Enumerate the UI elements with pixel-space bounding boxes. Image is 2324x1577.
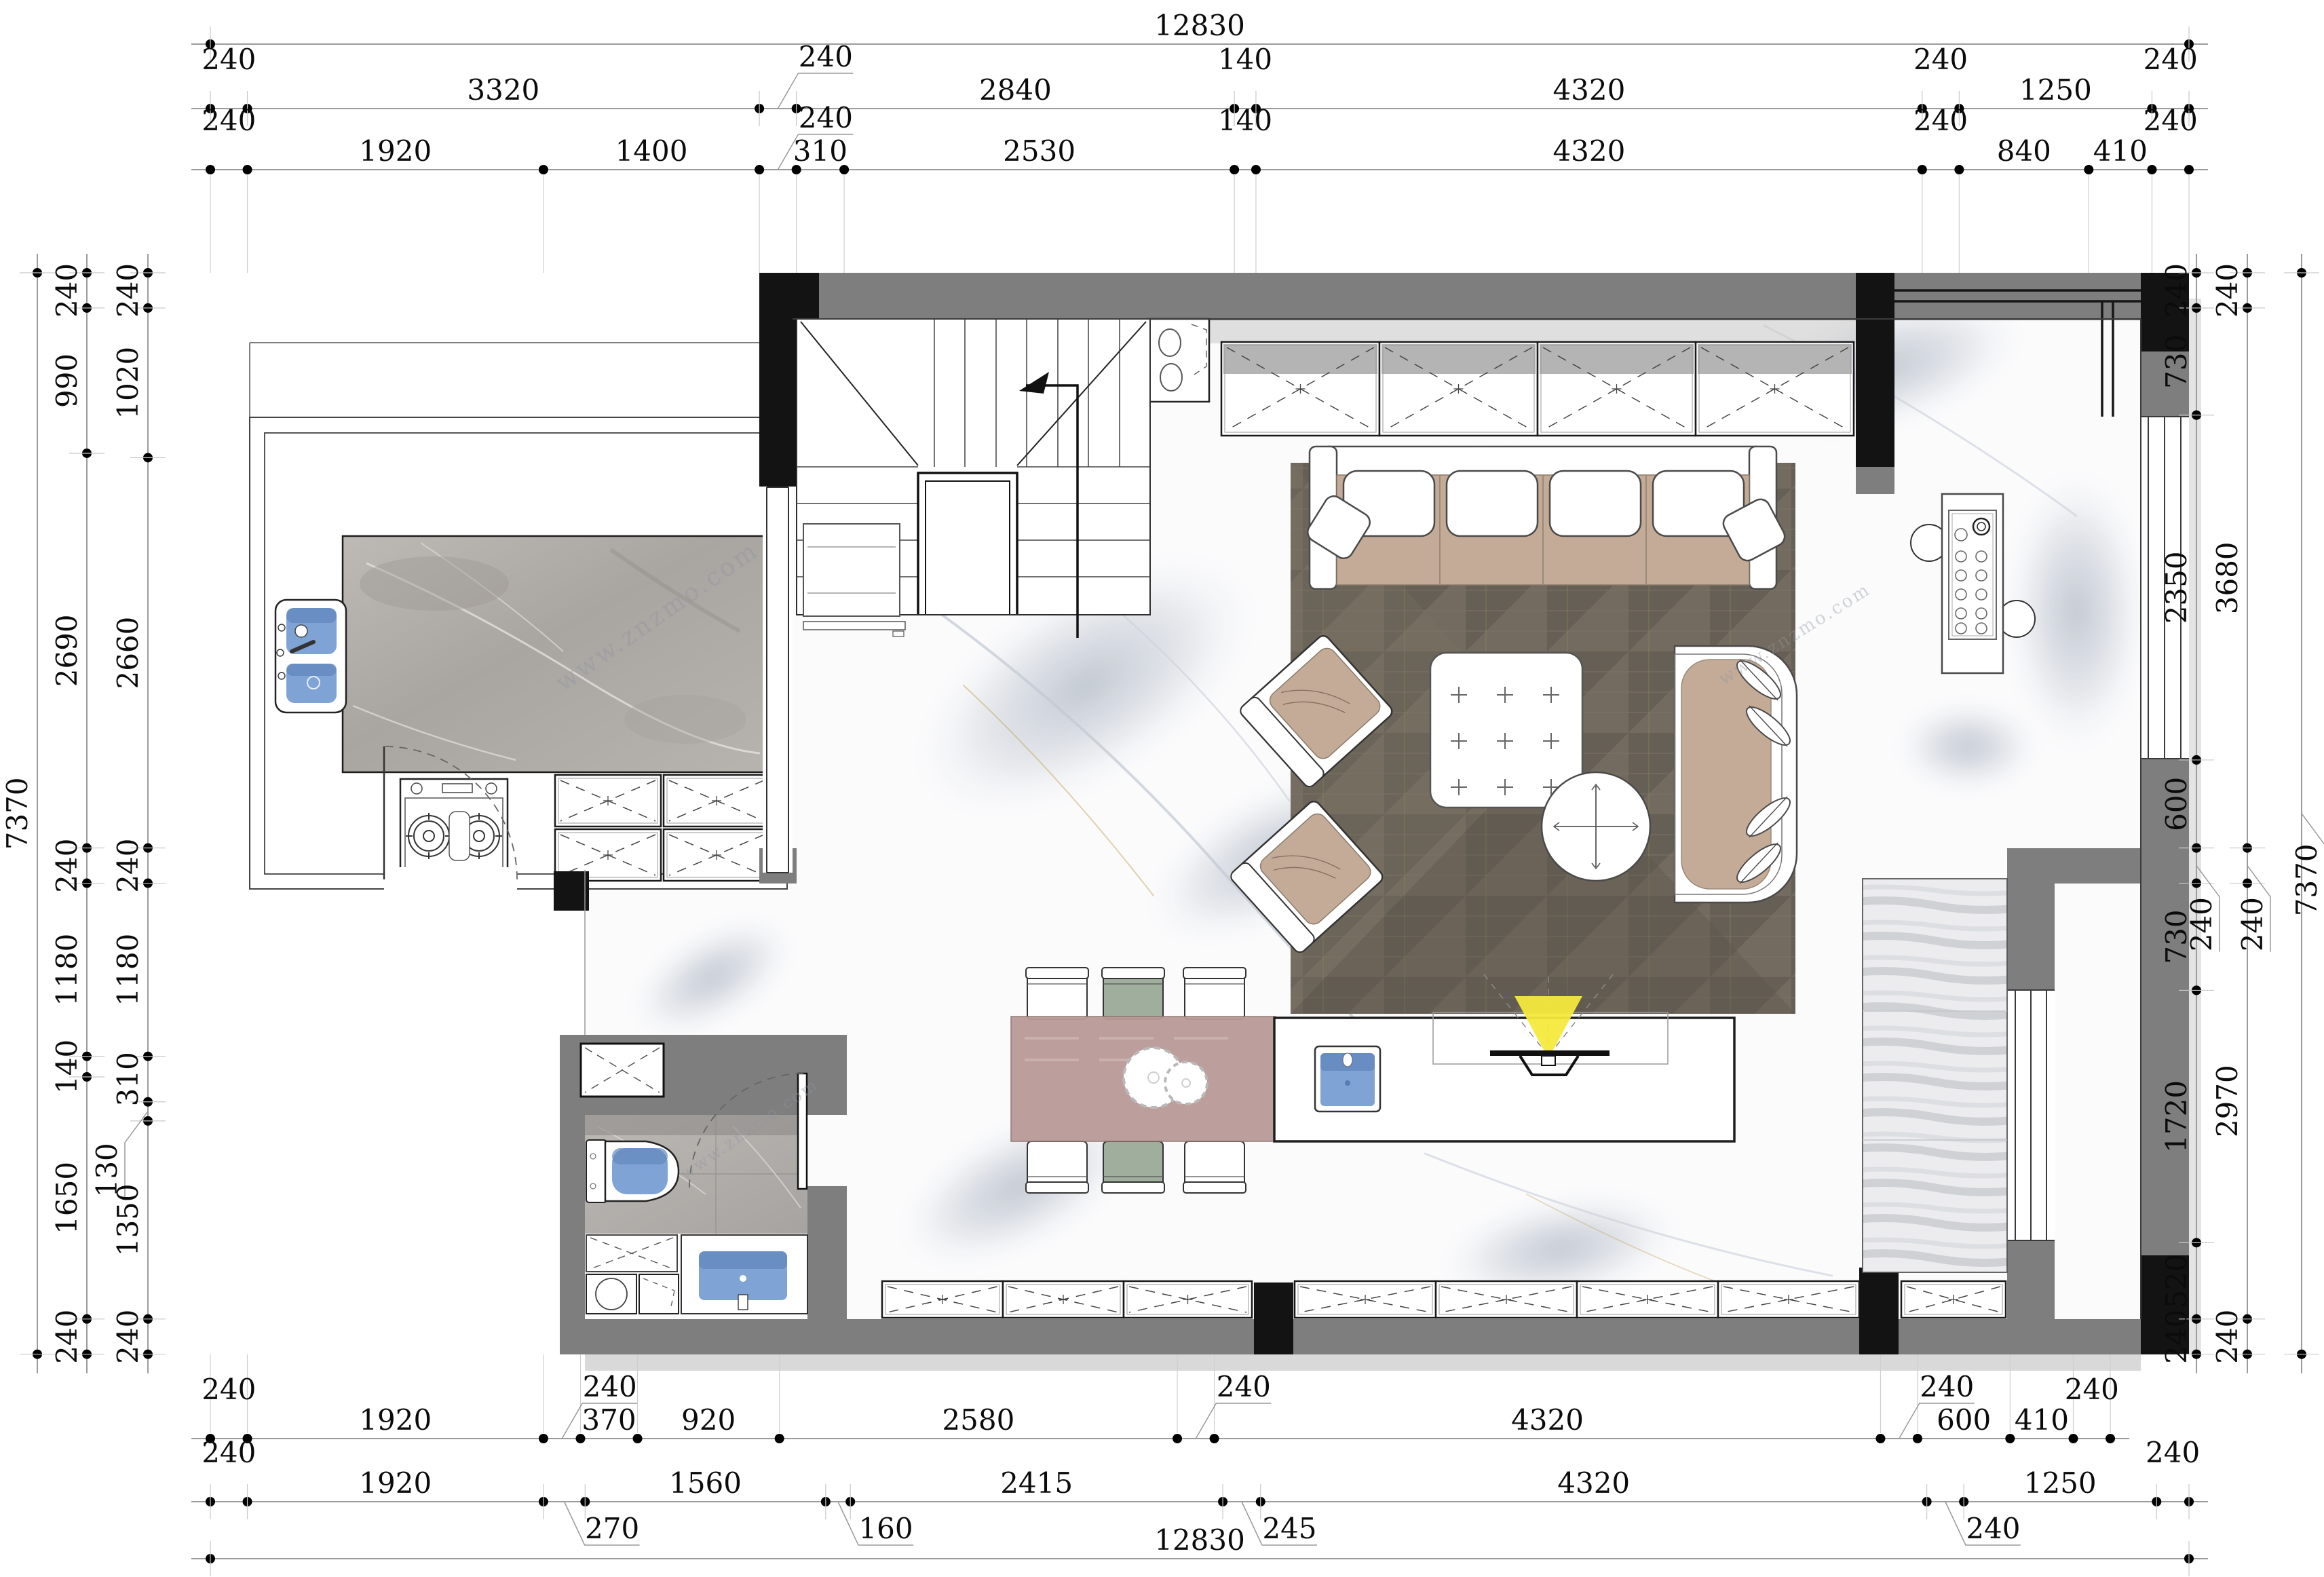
dim-label: 240 (50, 263, 83, 318)
top-wall (759, 273, 2189, 320)
dim-label: 240 (1920, 1370, 1974, 1403)
sofa (1304, 446, 1788, 589)
dim-label: 240 (202, 1436, 256, 1469)
dim-label: 240 (1217, 1370, 1271, 1403)
dining-chair (1102, 968, 1164, 1019)
dim-dot (206, 165, 215, 174)
dim-label: 2970 (2211, 1065, 2244, 1137)
x-cabinet (1124, 1281, 1252, 1318)
staircase (797, 319, 1150, 638)
dim-label: 160 (858, 1512, 913, 1545)
recess-window (2007, 990, 2055, 1240)
dining-chair (1102, 1141, 1164, 1193)
dim-label: 1650 (50, 1162, 83, 1234)
dim-label: 730 (2160, 909, 2193, 964)
dim-label: 1020 (111, 347, 145, 419)
top-closets (1221, 342, 1854, 436)
dim-label: 12830 (1154, 9, 1245, 42)
dim-label: 520 (2160, 1253, 2193, 1308)
cooktop-counter (1147, 319, 1209, 402)
dim-label: 240 (2160, 1310, 2193, 1364)
dim-label: 240 (50, 1310, 83, 1364)
dim-label: 4320 (1552, 73, 1625, 107)
dim-dot (2069, 1434, 2078, 1443)
dim-label: 1250 (2024, 1466, 2097, 1500)
dim-label: 7370 (2290, 843, 2323, 916)
round-side-table (1542, 772, 1650, 881)
dim-label: 7370 (1, 777, 34, 850)
gas-stove (400, 779, 508, 879)
dim-dot (1918, 165, 1927, 174)
dim-label: 1920 (359, 134, 432, 168)
dim-label: 1920 (359, 1403, 432, 1437)
dim-dot (1875, 1434, 1885, 1443)
dim-label: 240 (2146, 1436, 2200, 1469)
x-cabinet (664, 829, 769, 881)
dim-label: 310 (793, 134, 847, 168)
bath-lower-fixtures (586, 1235, 807, 1314)
dining-chair (1026, 1141, 1088, 1193)
dim-label: 245 (1262, 1512, 1316, 1545)
dim-label: 2580 (942, 1403, 1014, 1437)
dim-label: 990 (50, 354, 83, 408)
dim-dot (539, 1434, 548, 1443)
x-cabinet (1577, 1281, 1718, 1318)
dim-label: 370 (582, 1403, 636, 1437)
feature-stone-panel (1863, 879, 2007, 1272)
dim-label: 1250 (2019, 73, 2092, 107)
x-cabinet (1718, 1281, 1859, 1318)
x-cabinet (1221, 342, 1379, 436)
dim-label: 1560 (669, 1466, 742, 1500)
dim-label: 920 (681, 1403, 736, 1437)
ottoman-coffee-table (1430, 653, 1582, 807)
dim-label: 240 (1966, 1512, 2020, 1545)
bottom-cabinets (882, 1281, 2006, 1318)
dim-dot (1251, 165, 1261, 174)
dim-label: 240 (50, 839, 83, 893)
dim-dot (2184, 165, 2194, 174)
living-room (1229, 446, 1797, 1014)
chair-back (1102, 968, 1164, 978)
dim-label: 140 (1218, 43, 1272, 76)
dim-label: 840 (1997, 134, 2051, 168)
dim-label: 240 (111, 263, 145, 318)
dim-label: 240 (799, 40, 853, 73)
dim-label: 240 (2160, 263, 2193, 318)
understair-shelf (803, 622, 905, 630)
dim-label: 240 (111, 1310, 145, 1364)
dining-chair (1183, 968, 1246, 1019)
dim-dot (243, 165, 252, 174)
dim-label: 1350 (111, 1183, 145, 1256)
dim-label: 2690 (50, 614, 83, 687)
dim-label: 240 (799, 101, 853, 134)
dim-dot (2147, 165, 2156, 174)
dim-label: 240 (202, 1373, 256, 1406)
toilet (586, 1140, 679, 1202)
x-cabinet (1379, 342, 1538, 436)
dim-label: 240 (2211, 1310, 2244, 1364)
dim-dot (2005, 1434, 2015, 1443)
dim-label: 12830 (1154, 1523, 1245, 1557)
x-cabinet (1003, 1281, 1124, 1318)
dim-label: 4320 (1552, 134, 1625, 168)
island-sink (1315, 1046, 1380, 1111)
dim-dot (1913, 1434, 1922, 1443)
dim-label: 1180 (111, 934, 145, 1006)
dim-label: 410 (2015, 1403, 2069, 1437)
dim-label: 410 (2093, 134, 2148, 168)
stair-side-window (763, 487, 793, 873)
dim-label: 240 (2236, 897, 2269, 951)
dim-label: 140 (50, 1040, 83, 1094)
chair-back (1102, 1182, 1164, 1193)
x-cabinet (1538, 342, 1696, 436)
dim-label: 4320 (1511, 1403, 1584, 1437)
dim-dot (2084, 165, 2093, 174)
dim-label: 3680 (2211, 541, 2244, 614)
dim-label: 240 (202, 104, 256, 137)
x-cabinet (555, 775, 661, 826)
dim-label: 270 (585, 1512, 639, 1545)
dim-label: 240 (2144, 43, 2198, 76)
small-cabinet (639, 1274, 679, 1314)
dim-leader (1196, 1403, 1271, 1439)
dim-label: 4320 (1557, 1466, 1630, 1500)
dim-label: 240 (2065, 1373, 2119, 1406)
dim-label: 2660 (111, 617, 145, 689)
dim-dot (2106, 1434, 2115, 1443)
dim-label: 240 (2211, 263, 2244, 318)
dining-chair (1026, 968, 1088, 1019)
x-cabinet (1436, 1281, 1577, 1318)
dim-dot (1954, 165, 1964, 174)
dim-label: 1720 (2160, 1080, 2193, 1153)
bath-right-wall-upper (807, 1035, 847, 1076)
dim-label: 600 (2160, 777, 2193, 831)
dim-label: 2415 (1000, 1466, 1073, 1500)
chair-back (1026, 1182, 1088, 1193)
dim-dot (1210, 1434, 1219, 1443)
dim-label: 240 (202, 43, 256, 76)
x-cabinet (664, 775, 769, 826)
dim-dot (775, 1434, 784, 1443)
stair-void (918, 473, 1017, 614)
x-cabinet (1696, 342, 1854, 436)
x-cabinet (1901, 1281, 2006, 1318)
dim-label: 240 (1913, 43, 1968, 76)
dim-dot (1230, 165, 1239, 174)
dim-dot (1173, 1434, 1182, 1443)
dim-label: 1920 (359, 1466, 432, 1500)
x-cabinet (882, 1281, 1003, 1318)
bottom-wall (560, 1319, 2189, 1354)
bath-right-wall-lower (807, 1186, 847, 1354)
chaise-lounge (1675, 646, 1797, 902)
dim-label: 2840 (979, 73, 1052, 107)
dim-label: 240 (2144, 104, 2198, 137)
dim-label: 2350 (2160, 551, 2193, 624)
x-cabinet (1295, 1281, 1436, 1318)
dim-label: 600 (1937, 1403, 1991, 1437)
dim-label: 240 (583, 1370, 637, 1403)
understair-cabinet (803, 524, 900, 616)
dim-label: 1400 (615, 134, 688, 168)
dim-label: 2530 (1003, 134, 1075, 168)
chair-back (1183, 1182, 1246, 1193)
chair-back (1026, 968, 1088, 978)
washer (586, 1274, 636, 1314)
chair-back (1183, 968, 1246, 978)
dim-label: 240 (111, 839, 145, 893)
dim-label: 3320 (467, 73, 539, 107)
dim-label: 310 (111, 1052, 145, 1106)
dim-label: 1180 (50, 934, 83, 1006)
dim-label: 240 (1913, 104, 1968, 137)
kitchen-sink (275, 600, 346, 712)
dim-label: 730 (2160, 335, 2193, 389)
dim-dot (539, 165, 548, 174)
dining-chair (1183, 1141, 1246, 1193)
floor-plan-canvas: www.znzmo.com www.znzmo.com www.znzmo.co… (0, 0, 2324, 1577)
dim-label: 140 (1218, 104, 1272, 137)
dim-dot (755, 165, 764, 174)
floor-plan-drawing: www.znzmo.com www.znzmo.com www.znzmo.co… (0, 0, 2324, 1577)
